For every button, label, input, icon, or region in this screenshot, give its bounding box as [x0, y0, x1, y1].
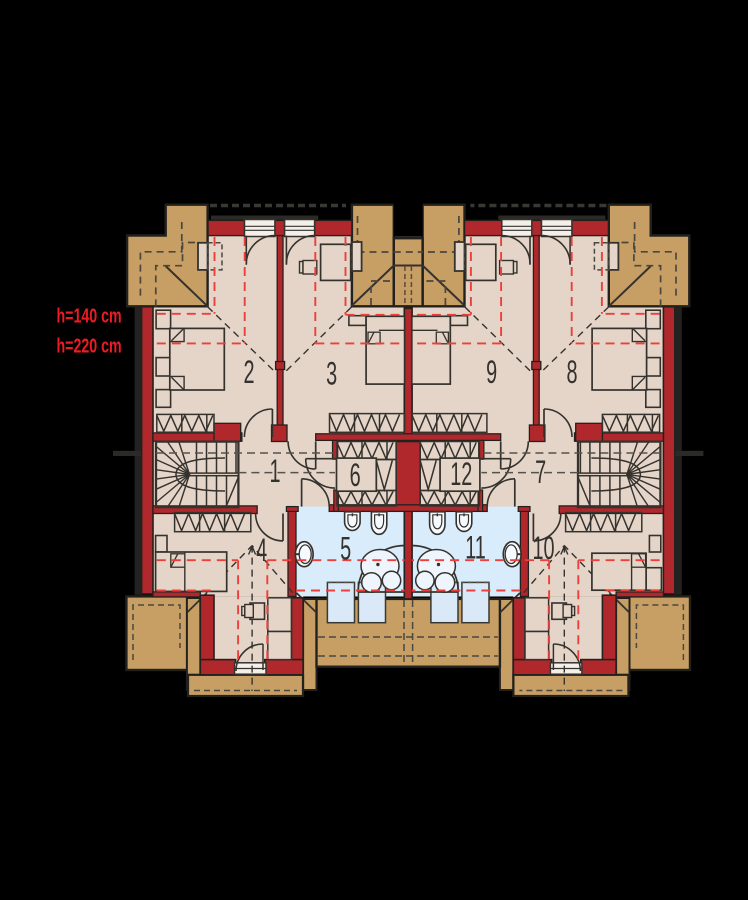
svg-text:h=140 cm: h=140 cm: [57, 304, 122, 327]
svg-text:h=220 cm: h=220 cm: [57, 334, 122, 357]
svg-text:2: 2: [243, 354, 254, 390]
svg-text:10: 10: [532, 530, 554, 566]
svg-text:12: 12: [450, 456, 472, 492]
svg-text:1: 1: [269, 453, 280, 489]
svg-text:4: 4: [256, 532, 267, 568]
svg-text:6: 6: [350, 457, 361, 493]
svg-text:7: 7: [535, 454, 546, 490]
svg-text:11: 11: [465, 530, 486, 566]
svg-text:5: 5: [340, 530, 351, 566]
svg-text:8: 8: [566, 354, 577, 390]
svg-text:3: 3: [326, 355, 337, 391]
svg-text:9: 9: [486, 354, 497, 390]
